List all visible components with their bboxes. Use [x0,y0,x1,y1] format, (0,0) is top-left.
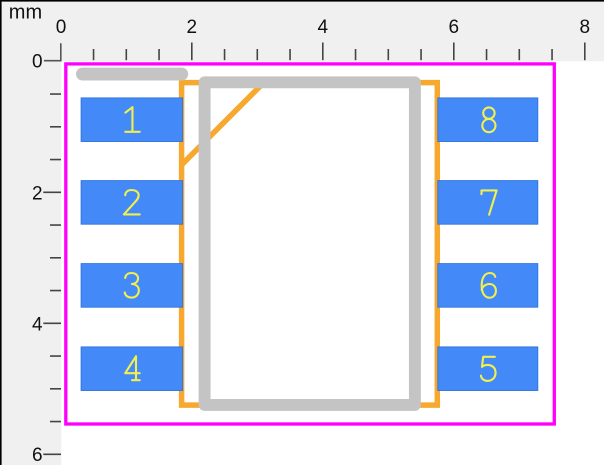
svg-text:6: 6 [449,17,460,38]
svg-text:0: 0 [56,17,67,38]
svg-text:6: 6 [32,445,43,465]
svg-text:2: 2 [187,17,198,38]
svg-text:2: 2 [32,184,43,205]
svg-text:mm: mm [9,2,42,24]
svg-text:0: 0 [32,51,43,72]
svg-text:4: 4 [318,17,329,38]
svg-text:8: 8 [580,17,591,38]
svg-text:4: 4 [32,315,43,336]
